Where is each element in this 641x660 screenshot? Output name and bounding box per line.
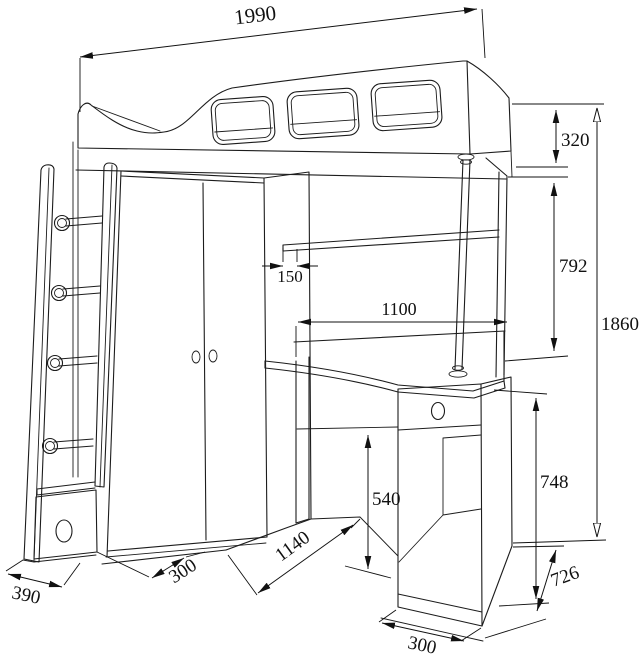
dimension-726: 726 [485,546,582,638]
wardrobe-handle-right [209,350,217,362]
bed-guard-rail [78,61,470,154]
ladder-rung-3 [48,356,98,371]
drawer-finger-hole [56,520,72,542]
cabinet-drawer-divider [398,425,481,430]
dimension-792: 792 [505,177,588,361]
ladder-rung-4 [43,439,94,454]
bed-side-face [467,61,511,154]
desk-left-support [296,357,309,523]
cutout-inner [291,92,356,135]
dimension-390: 390 [6,560,80,609]
dim-label-390: 390 [10,582,42,608]
dim-label-748: 748 [540,472,569,493]
cabinet-front [398,384,482,626]
dimension-1860: 1860 [513,108,639,543]
under-desk-rail [297,427,398,429]
dim-label-792: 792 [559,256,588,277]
wardrobe-door-gap [203,183,206,540]
dimension-320: 320 [512,104,604,167]
cutout-inner [375,84,439,127]
dim-label-320: 320 [561,130,590,151]
ladder-left-stile [24,165,54,562]
bed-box-side-edge [511,151,512,177]
dimension-300-cabinet: 300 [379,610,481,659]
dim-label-726: 726 [548,562,582,591]
cutout-chord [375,112,440,117]
cutout-chord [215,128,273,132]
dim-label-1990: 1990 [233,1,278,30]
dim-label-300-wardrobe: 300 [165,555,200,588]
dim-label-1140: 1140 [272,527,315,566]
dimension-1990: 1990 [80,1,485,112]
dim-label-1100: 1100 [381,299,416,319]
bed-leg [73,142,78,477]
rail-cutout-2 [286,88,359,140]
ladder-base-drawer-unit [23,482,97,562]
technical-drawing-canvas: 1990 320 792 1860 150 1100 540 748 [0,0,641,660]
cabinet-niche [399,435,481,562]
dimension-1140: 1140 [228,519,360,595]
floor-under-desk [311,517,398,556]
dim-label-300-cabinet: 300 [406,632,438,658]
dim-label-540: 540 [372,489,401,510]
rail-cutout-3 [370,80,442,132]
dimension-540: 540 [345,435,401,578]
dim-label-1860: 1860 [601,314,639,335]
wardrobe-handle-left [192,351,200,363]
cutout-inner [215,100,271,141]
wardrobe-right-edge [264,178,267,537]
wardrobe [102,171,311,564]
support-pole [449,154,474,377]
dim-label-150: 150 [277,267,303,286]
cabinet-side-face [481,377,512,626]
desk-cabinet [381,377,512,641]
rail-cutout-1 [211,96,276,145]
loft-bed-drawing: 1990 320 792 1860 150 1100 540 748 [0,0,641,660]
dimension-300-wardrobe: 300 [97,552,205,588]
cabinet-drawer-handle [432,403,445,420]
desk-top [265,331,505,398]
ladder-rung-2 [52,286,101,301]
ladder [23,163,117,562]
dimension-1100: 1100 [296,299,507,357]
cutout-chord [291,120,357,125]
